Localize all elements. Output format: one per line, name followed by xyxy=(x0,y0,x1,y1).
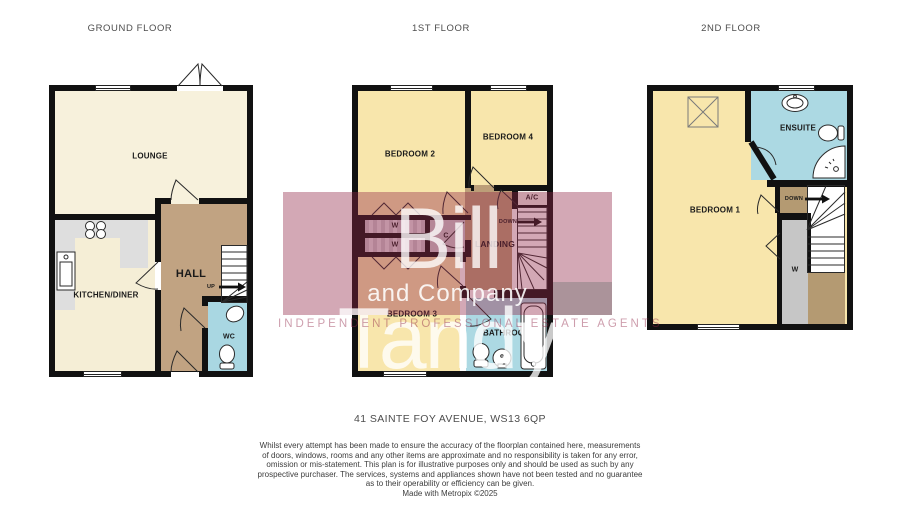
second-floor-title: 2ND FLOOR xyxy=(701,23,761,34)
watermark-agency-subtitle: and Company xyxy=(283,280,612,308)
wall xyxy=(647,324,853,330)
window xyxy=(390,85,433,91)
window xyxy=(490,85,527,91)
wall-wc-top xyxy=(202,296,247,302)
wall-wardrobe-left xyxy=(777,220,782,324)
wall-wc-left xyxy=(202,328,208,371)
kitchen-counter-right xyxy=(120,220,148,268)
window xyxy=(697,324,740,330)
label-wc: WC xyxy=(223,334,235,341)
metropix-credit: Made with Metropix ©2025 xyxy=(0,489,900,499)
ground-stairwell xyxy=(221,245,247,302)
ground-floor-title: GROUND FLOOR xyxy=(88,23,173,34)
label-bedroom4: BEDROOM 4 xyxy=(483,133,533,142)
wall xyxy=(647,85,653,330)
label-down-second: DOWN xyxy=(785,196,803,202)
watermark-tagline: INDEPENDENT PROFESSIONAL ESTATE AGENTS xyxy=(278,318,618,330)
room-ensuite xyxy=(751,91,847,180)
label-bedroom2: BEDROOM 2 xyxy=(385,150,435,159)
wall-ensuite-bottom xyxy=(767,180,847,187)
label-lounge: LOUNGE xyxy=(132,152,167,161)
label-hall: HALL xyxy=(176,268,206,280)
wall-kitchen-hall xyxy=(155,290,161,371)
label-bedroom1: BEDROOM 1 xyxy=(690,206,740,215)
window xyxy=(778,85,815,91)
wall xyxy=(847,85,853,330)
window xyxy=(95,85,131,91)
floorplan-page: GROUND FLOOR 1ST FLOOR 2ND FLOOR LOUN xyxy=(0,0,900,511)
disclaimer-line: omission or mis-statement. This plan is … xyxy=(0,460,900,470)
second-stairwell xyxy=(807,185,845,273)
disclaimer-line: Whilst every attempt has been made to en… xyxy=(0,441,900,451)
wall xyxy=(49,371,253,377)
wall-wardrobe-right xyxy=(808,220,811,273)
front-door-opening xyxy=(171,372,199,377)
disclaimer-line: prospective purchaser. The services, sys… xyxy=(0,470,900,480)
under-stairs-area xyxy=(808,273,845,324)
wall-wc-left xyxy=(202,296,208,306)
wall xyxy=(49,85,55,377)
wall-lounge-kitchen xyxy=(49,214,161,220)
french-doors xyxy=(178,64,222,86)
disclaimer-line: of doors, windows, rooms and any other i… xyxy=(0,451,900,461)
wall-bed2-bed4 xyxy=(465,91,471,188)
wall-lounge-hall xyxy=(199,198,247,204)
label-up: UP xyxy=(207,284,215,290)
wall-landing-bottom xyxy=(777,213,811,220)
window xyxy=(83,371,122,377)
wall xyxy=(247,85,253,377)
label-ensuite: ENSUITE xyxy=(780,124,816,133)
label-kitchen-diner: KITCHEN/DINER xyxy=(73,291,138,300)
property-address: 41 SAINTE FOY AVENUE, WS13 6QP xyxy=(0,413,900,425)
wall-landing-left xyxy=(775,187,780,213)
first-floor-title: 1ST FLOOR xyxy=(412,23,470,34)
kitchen-counter-left xyxy=(55,220,75,310)
disclaimer-line: as to their operability or efficiency ca… xyxy=(0,479,900,489)
wall-ensuite-left xyxy=(745,91,751,142)
french-door-opening xyxy=(177,86,223,91)
label-wardrobe: W xyxy=(792,267,799,274)
wall-kitchen-hall xyxy=(155,204,161,262)
disclaimer-text: Whilst every attempt has been made to en… xyxy=(0,441,900,499)
